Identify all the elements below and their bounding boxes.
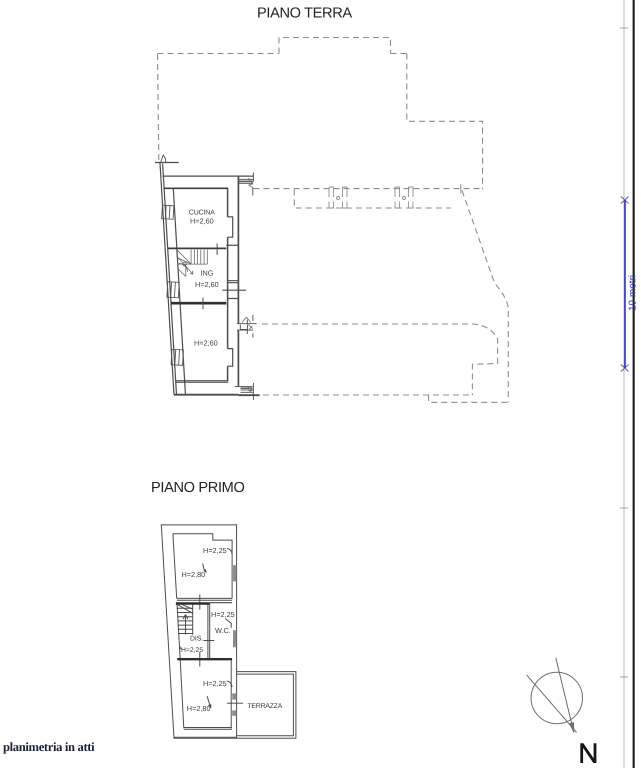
svg-text:H=2,25: H=2,25 bbox=[203, 679, 227, 688]
svg-text:H=2,60: H=2,60 bbox=[194, 339, 218, 348]
svg-text:H=2,80: H=2,80 bbox=[187, 704, 211, 713]
svg-text:10 metri: 10 metri bbox=[628, 275, 639, 311]
svg-text:H=2,80: H=2,80 bbox=[182, 570, 206, 579]
svg-text:H=2,60: H=2,60 bbox=[195, 280, 219, 289]
svg-text:H=2,60: H=2,60 bbox=[190, 216, 214, 225]
svg-text:DIS.: DIS. bbox=[190, 636, 203, 643]
svg-text:PIANO TERRA: PIANO TERRA bbox=[257, 5, 352, 21]
svg-text:H=2,25: H=2,25 bbox=[181, 647, 203, 654]
svg-text:TERRAZZA: TERRAZZA bbox=[247, 703, 282, 710]
svg-text:H=2,25: H=2,25 bbox=[203, 546, 227, 555]
svg-text:CUCINA: CUCINA bbox=[189, 209, 215, 216]
svg-text:PIANO PRIMO: PIANO PRIMO bbox=[151, 480, 244, 496]
svg-text:planimetria in atti: planimetria in atti bbox=[3, 740, 95, 754]
svg-text:ING: ING bbox=[201, 269, 214, 278]
svg-text:W.C.: W.C. bbox=[215, 626, 231, 635]
svg-text:H=2,25: H=2,25 bbox=[211, 610, 235, 619]
